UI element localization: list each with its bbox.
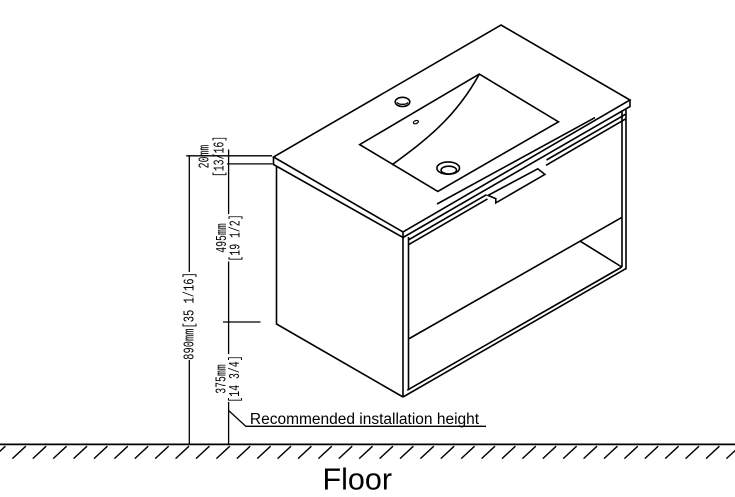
svg-text:[19 1/2]: [19 1/2] — [228, 214, 244, 261]
svg-text:890mm[35 1/16]: 890mm[35 1/16] — [181, 272, 198, 360]
svg-text:Floor: Floor — [323, 463, 393, 497]
svg-text:20mm: 20mm — [197, 145, 213, 169]
svg-text:[14 3/4]: [14 3/4] — [227, 355, 243, 402]
svg-text:Recommended installation heigh: Recommended installation height — [250, 411, 480, 428]
svg-text:[13/16]: [13/16] — [212, 136, 228, 177]
